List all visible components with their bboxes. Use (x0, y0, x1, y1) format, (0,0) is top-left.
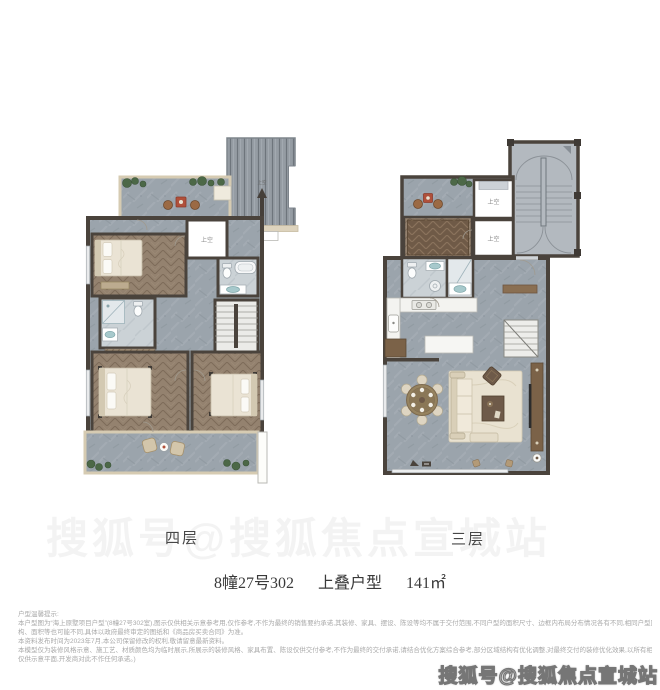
unit-type: 上叠户型 (318, 575, 382, 592)
watermark: 搜狐号@搜狐焦点宣城站 (438, 661, 658, 688)
coffee-table (482, 396, 504, 421)
stove (412, 301, 436, 310)
balcony-chair (142, 437, 158, 453)
bay-ledge (258, 432, 267, 483)
disclaimer-line: 本户型图为“海上原墅项目户型”(8幢27号302室),图示仅供相关示意参考用,仅… (18, 619, 652, 628)
floorplan-image: 上空 上空 (0, 0, 660, 690)
bathroom-mid (100, 298, 155, 348)
bench (101, 282, 129, 289)
carpet-room (404, 217, 472, 258)
void-label: 上空 (487, 198, 499, 206)
stairwell (507, 139, 581, 256)
toilet (408, 268, 416, 278)
void-room: 上空 (474, 220, 513, 256)
terrace (120, 177, 231, 221)
bedroom-bottom-left (92, 352, 188, 432)
washer (430, 281, 441, 292)
bathroom (402, 258, 447, 298)
disclaimer-heading: 户型温馨提示: (18, 610, 652, 619)
unit-area: 141㎡ (406, 575, 446, 592)
plan-floor4: 上空 上空 (85, 138, 298, 483)
unit-title: 8幢27号302 上叠户型 141㎡ (0, 569, 660, 593)
toilet (134, 306, 142, 316)
inner-stairs (504, 320, 538, 357)
fridge-cabinet (385, 339, 406, 357)
terrace-chair (164, 201, 173, 210)
bed (98, 366, 152, 418)
void-room: 上空 (187, 220, 227, 258)
ac-ledge (479, 182, 508, 190)
terrace-chair (414, 200, 423, 209)
tv-console (529, 363, 543, 451)
void-room: 上空 (474, 180, 513, 218)
bed (209, 372, 257, 416)
bedroom-top (92, 234, 186, 296)
tv (529, 384, 532, 428)
shower-room (447, 258, 473, 298)
terrace-chair (191, 201, 200, 210)
upper-block: 上空 上空 (402, 177, 513, 259)
bedroom-bottom-right (192, 352, 262, 432)
void-label: 上空 (487, 235, 499, 243)
roof-label: 上空 (258, 179, 267, 185)
rug (408, 220, 469, 255)
floor4-label: 四层 (152, 527, 212, 548)
disclaimer-line: 构、面积等也可能不同,具体以政府最终审定的图纸和《商品房买卖合同》为准。 (18, 628, 652, 637)
entry-bench (503, 285, 537, 293)
sofa (450, 372, 472, 439)
toilet (223, 268, 231, 278)
stairs (215, 300, 258, 352)
ottoman (470, 433, 498, 442)
island (425, 336, 473, 353)
plan-floor3: 上空 上空 (383, 139, 581, 473)
bathroom-top (218, 258, 258, 296)
void-label: 上空 (201, 236, 213, 244)
disclaimer-line: 本模型仅为装修风格示意、施工艺、材质颜色均为临时展示,所展示的装修风格、家具布置… (18, 646, 652, 655)
disclaimer-line: 本资料发布时间为2023年7月,本公司保留修改的权利,敬请留意最新资料。 (18, 637, 652, 646)
floor3-label: 三层 (438, 528, 498, 549)
balcony (85, 432, 258, 473)
unit-number: 8幢27号302 (214, 575, 294, 592)
bed (95, 240, 142, 276)
kitchen-wall (385, 358, 439, 362)
balcony-chair (170, 441, 185, 456)
planter-box (214, 186, 231, 200)
terrace-chair (434, 200, 443, 209)
entry-opening (516, 256, 538, 260)
disclaimer: 户型温馨提示: 本户型图为“海上原墅项目户型”(8幢27号302室),图示仅供相… (18, 610, 652, 664)
